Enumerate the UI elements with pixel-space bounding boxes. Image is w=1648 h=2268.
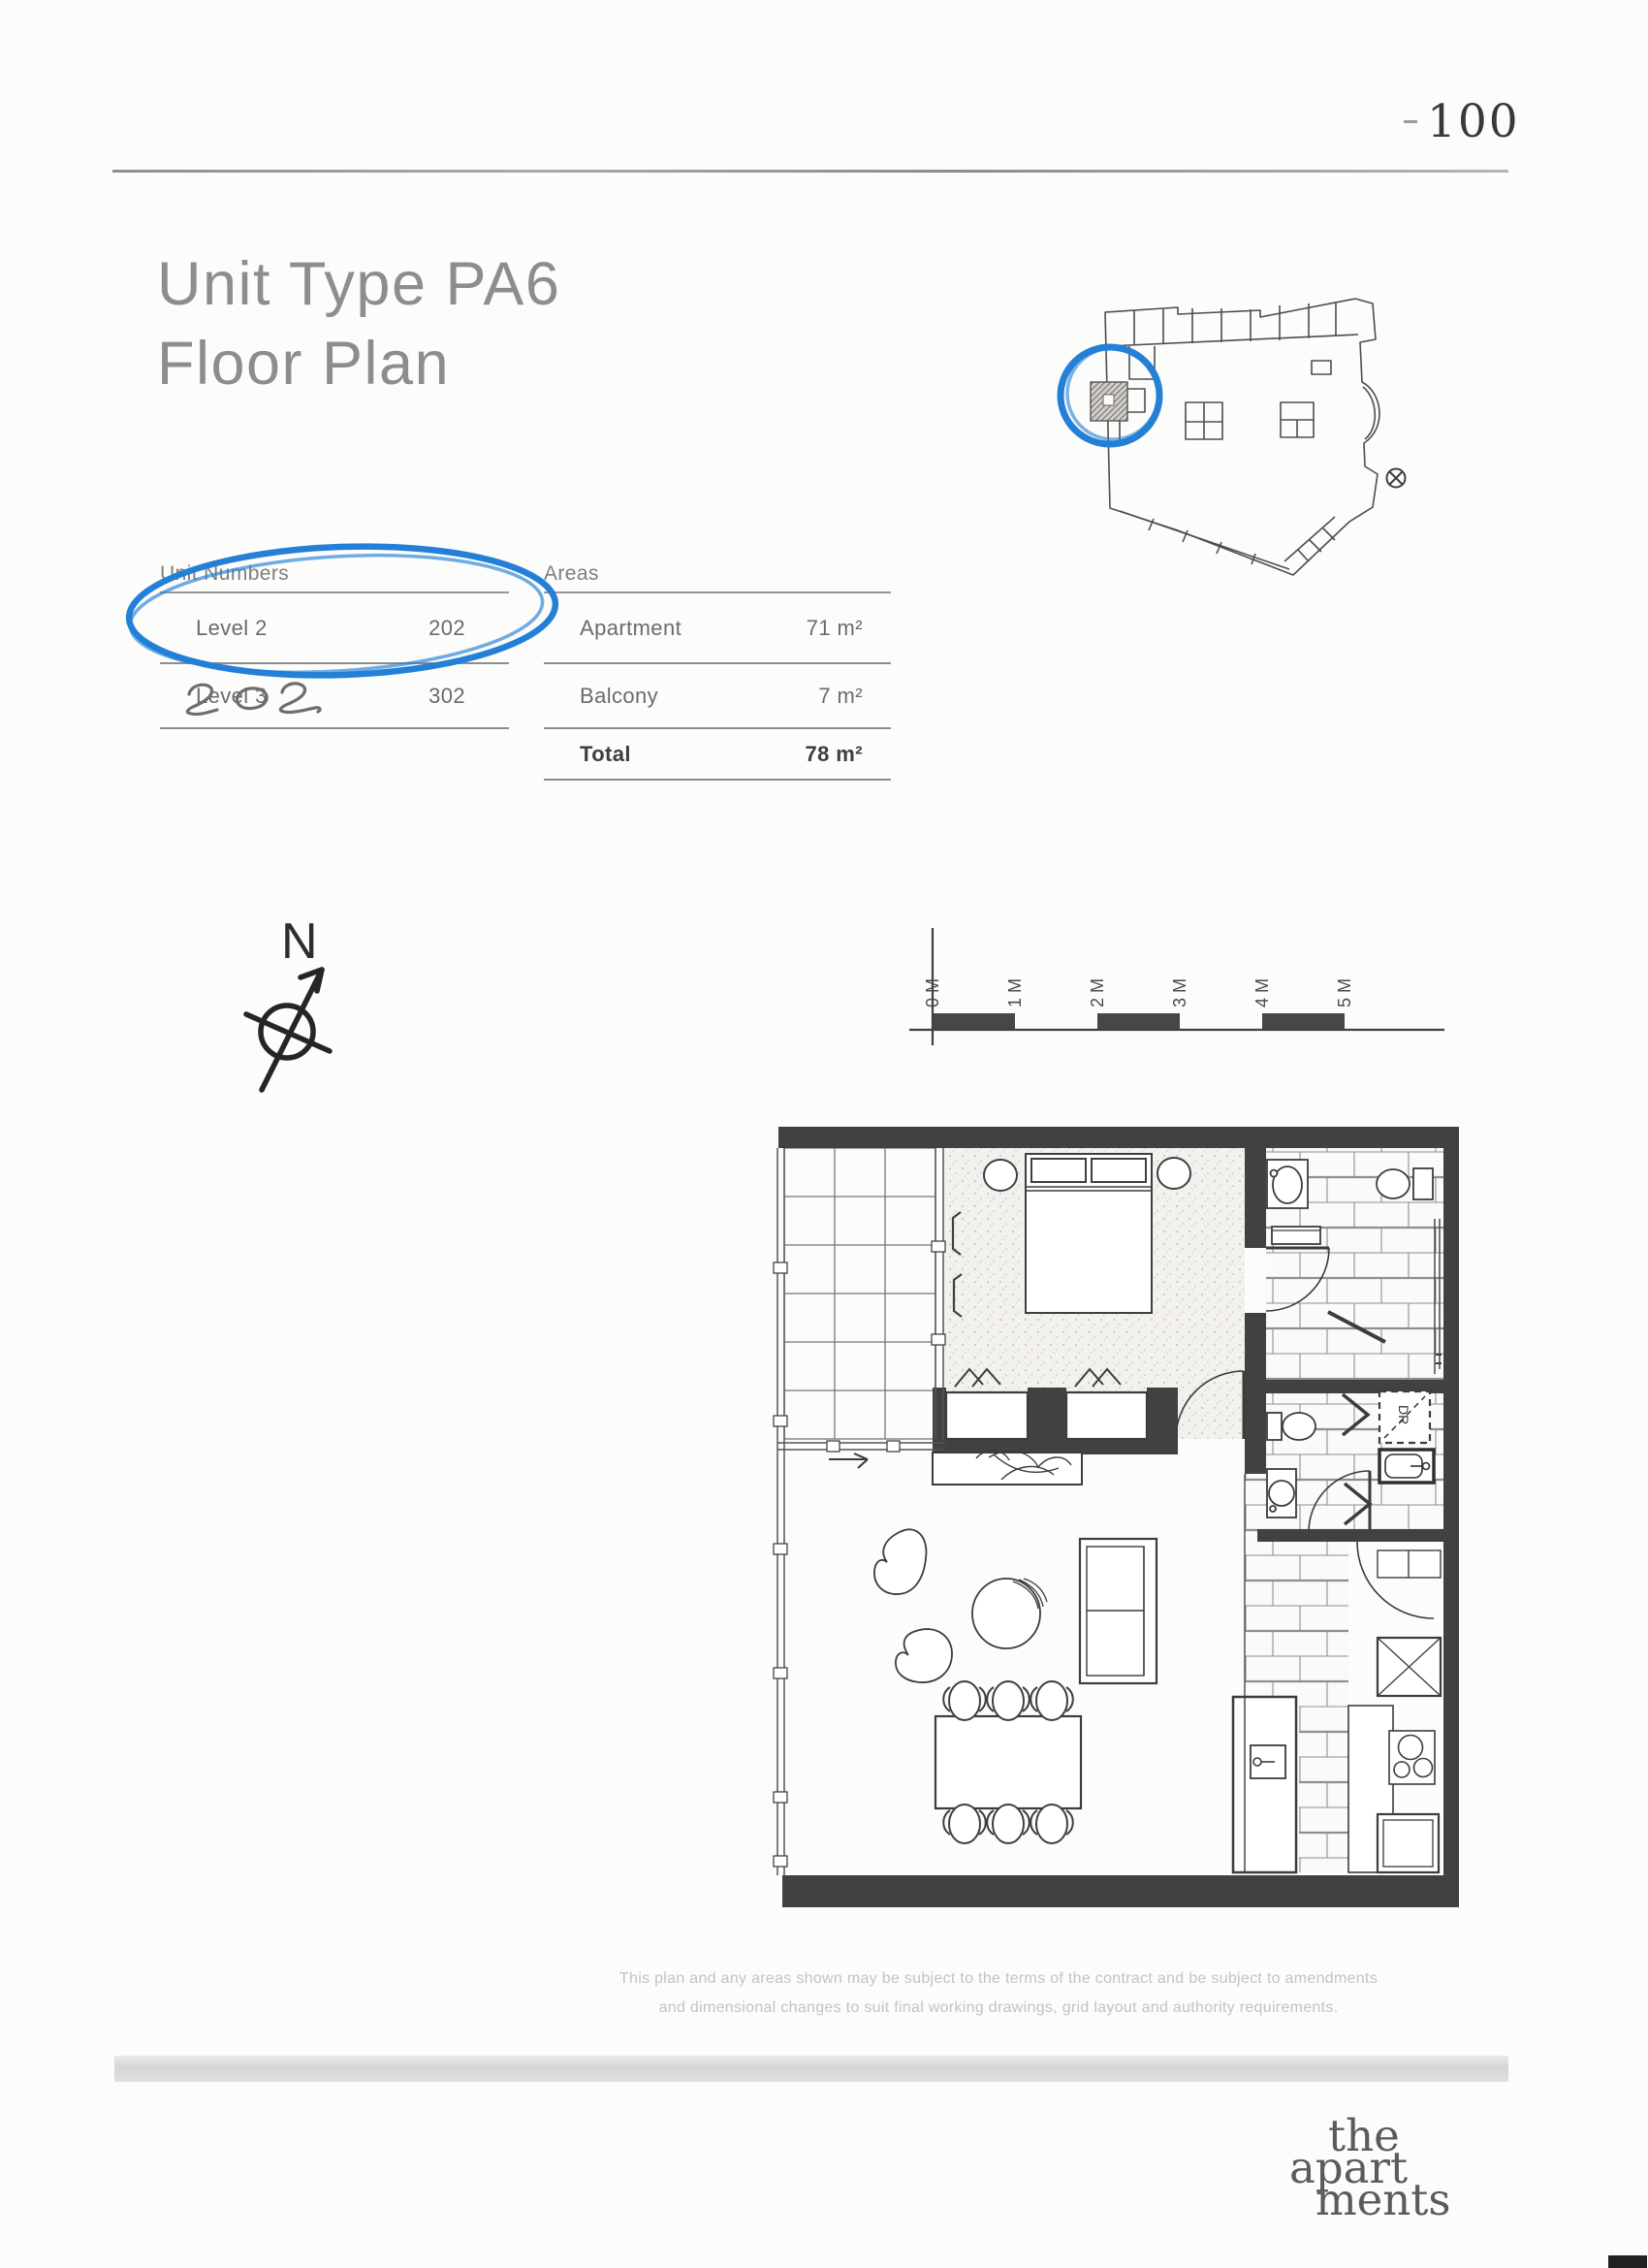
top-rule: [112, 170, 1508, 173]
bed: [1026, 1154, 1152, 1313]
unit-level-label: Level 2: [160, 616, 268, 641]
title-line-1: Unit Type PA6: [157, 244, 560, 324]
area-label: Apartment: [544, 616, 681, 641]
title-line-2: Floor Plan: [157, 324, 560, 403]
wc-toilet: [1267, 1413, 1315, 1440]
handwritten-unit-number: [179, 677, 334, 727]
table-row: Balcony 7 m²: [544, 664, 891, 729]
scan-corner-mark: [1608, 2255, 1647, 2268]
oven: [1378, 1814, 1439, 1872]
cooktop: [1389, 1731, 1435, 1784]
bedside-table-left: [984, 1160, 1017, 1191]
area-label: Balcony: [544, 684, 658, 709]
balcony-tiles: [784, 1148, 935, 1439]
area-value: 71 m²: [807, 616, 891, 641]
floor-plan-drawing: DR: [771, 1127, 1459, 1907]
logo-word-ments: ments: [1315, 2184, 1450, 2216]
unit-band-bottom-left: [1120, 511, 1289, 569]
ottoman-rug: [972, 1579, 1047, 1648]
unit-band-bottom-right: [1284, 517, 1335, 561]
scale-label: 3 M: [1170, 978, 1189, 1007]
disclaimer-line-1: This plan and any areas shown may be sub…: [465, 1965, 1532, 1994]
sofa: [1080, 1539, 1157, 1683]
right-small-unit: [1312, 361, 1331, 374]
north-arrow-icon: N: [221, 902, 386, 1125]
north-label: N: [281, 913, 318, 970]
area-value: 78 m²: [806, 742, 891, 767]
unit-number-value: 302: [428, 684, 509, 709]
unit-number-value: 202: [428, 616, 509, 641]
bathroom-shelf: [1272, 1227, 1320, 1244]
table-row: Apartment 71 m²: [544, 593, 891, 664]
area-label: Total: [544, 742, 631, 767]
kitchen-floor: [1299, 1540, 1348, 1872]
bathroom-toilet: [1377, 1168, 1433, 1199]
building-key-plan: [1052, 286, 1420, 585]
areas-header: Areas: [544, 541, 891, 593]
scale-label: 2 M: [1088, 978, 1107, 1007]
armchair-1: [874, 1529, 927, 1594]
dining-table: [935, 1716, 1081, 1808]
bay-inner-line: [1363, 387, 1375, 439]
table-row-total: Total 78 m²: [544, 729, 891, 781]
page-number: 100: [1427, 95, 1520, 148]
entry-arrow: [829, 1453, 868, 1468]
wc-sink: [1267, 1469, 1296, 1517]
unit-band-top: [1108, 302, 1358, 346]
fridge-space: [1378, 1638, 1441, 1696]
area-value: 7 m²: [818, 684, 891, 709]
scan-dash-mark: [1404, 120, 1417, 123]
scale-bar: 0 M 1 M 2 M 3 M 4 M 5 M: [902, 916, 1459, 1052]
armchair-2: [896, 1629, 952, 1682]
upper-cabinets: [1378, 1550, 1441, 1578]
scale-label: 0 M: [923, 978, 942, 1007]
kitchen-island: [1233, 1697, 1296, 1872]
scale-label: 1 M: [1005, 978, 1025, 1007]
bathroom-sink: [1267, 1160, 1308, 1208]
brand-logo: the apart ments: [1289, 2120, 1450, 2216]
scale-label: 5 M: [1335, 978, 1354, 1007]
dryer-box: DR: [1379, 1391, 1430, 1443]
scale-label: 4 M: [1252, 978, 1272, 1007]
key-plan-compass-icon: [1387, 469, 1406, 488]
page-title: Unit Type PA6 Floor Plan: [157, 244, 560, 403]
disclaimer: This plan and any areas shown may be sub…: [465, 1965, 1532, 2023]
disclaimer-line-2: and dimensional changes to suit final wo…: [465, 1994, 1532, 2023]
table-row: Level 2 202: [160, 593, 509, 664]
laundry-tub: [1379, 1450, 1434, 1483]
areas-table: Areas Apartment 71 m² Balcony 7 m² Total…: [544, 541, 891, 781]
bedside-table-right: [1157, 1158, 1190, 1189]
unit-numbers-header: Unit Numbers: [160, 541, 509, 593]
bottom-rule-band: [114, 2056, 1508, 2082]
scanned-floorplan-page: 100 Unit Type PA6 Floor Plan: [0, 0, 1648, 2268]
dryer-label: DR: [1396, 1405, 1411, 1424]
tv-console-with-plant: [933, 1451, 1082, 1485]
